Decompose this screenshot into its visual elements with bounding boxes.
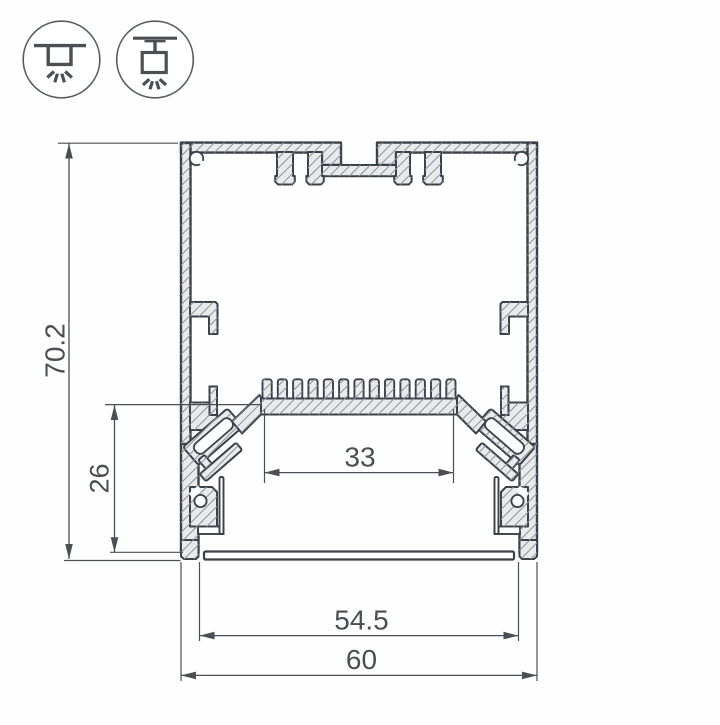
svg-text:54.5: 54.5	[334, 605, 389, 636]
svg-text:70.2: 70.2	[40, 323, 71, 378]
svg-text:26: 26	[85, 463, 115, 493]
svg-text:60: 60	[346, 644, 377, 675]
svg-text:33: 33	[344, 442, 375, 473]
